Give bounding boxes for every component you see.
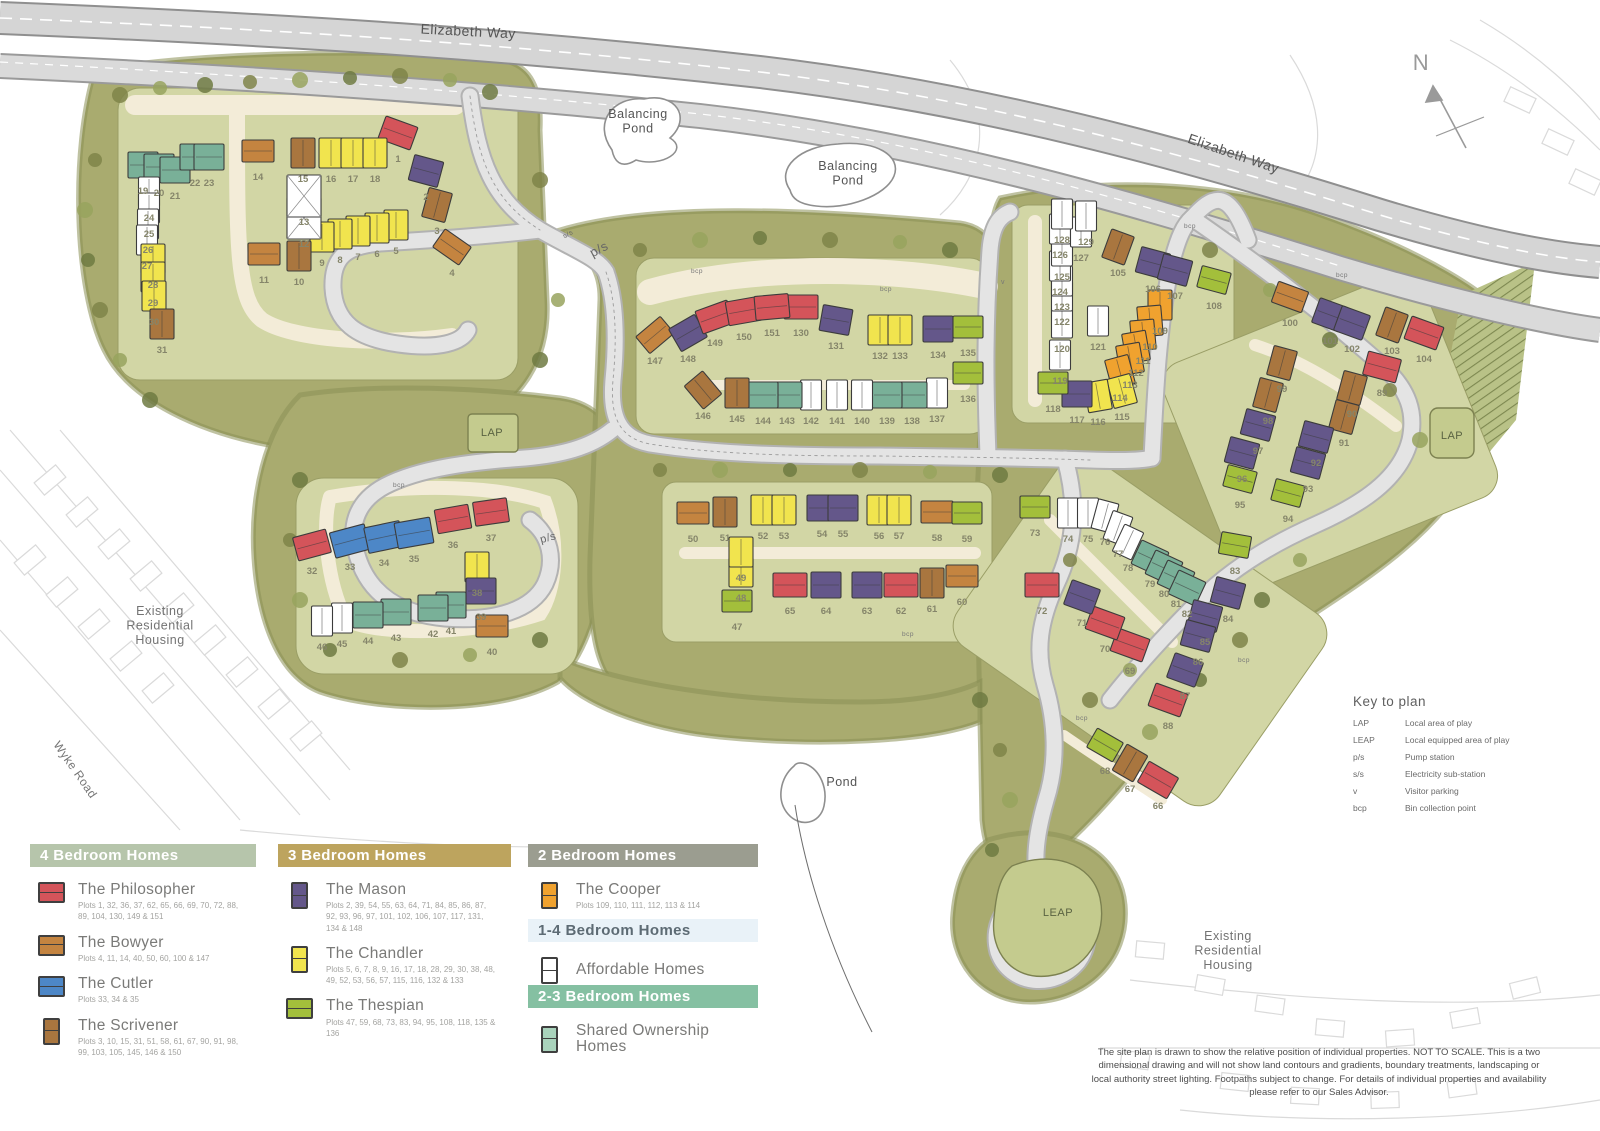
plot-number: 96 [1237, 474, 1248, 485]
plot-house [353, 602, 383, 628]
plot-number: 45 [337, 639, 348, 650]
plot-number: 39 [476, 612, 487, 623]
existing-house-outline [1135, 941, 1164, 959]
tree-icon [653, 463, 667, 477]
plot-house [754, 294, 790, 321]
plot-house [319, 138, 343, 168]
plot-number: 106 [1145, 284, 1161, 295]
plot-number: 76 [1100, 537, 1111, 548]
tree-icon [243, 75, 257, 89]
map-label: bcp [393, 482, 405, 489]
disclaimer-text: The site plan is drawn to show the relat… [1088, 1046, 1550, 1099]
plot-number: 56 [874, 531, 885, 542]
plot-number: 117 [1069, 415, 1084, 426]
plot-house [332, 603, 353, 633]
plot-number: 63 [862, 606, 873, 617]
plot-number: 16 [326, 174, 337, 185]
tree-icon [443, 73, 457, 87]
map-label: ExistingResidentialHousing [126, 604, 193, 647]
plot-number: 1 [395, 154, 401, 165]
plot-number: 80 [1159, 589, 1170, 600]
plot-number: 40 [487, 647, 498, 658]
plot-number: 133 [892, 351, 908, 362]
plot-number: 11 [259, 275, 270, 286]
plot-house [772, 495, 796, 525]
plot-house [248, 243, 280, 265]
map-label: N [1413, 50, 1429, 75]
plot-number: 30 [149, 317, 160, 328]
plot-number: 123 [1054, 302, 1070, 313]
plot-number: 51 [720, 533, 731, 544]
plot-number: 151 [764, 328, 781, 339]
existing-house-outline [130, 561, 162, 591]
plot-number: 12 [299, 239, 310, 250]
plot-number: 57 [894, 531, 905, 542]
plot-house [291, 138, 315, 168]
existing-house-outline [1195, 975, 1225, 996]
plot-number: 93 [1303, 484, 1314, 495]
tree-icon [88, 153, 102, 167]
plot-number: 101 [1322, 336, 1339, 347]
plot-number: 139 [879, 416, 895, 427]
plot-number: 5 [393, 246, 399, 257]
plot-number: 113 [1122, 380, 1137, 391]
plot-number: 46 [317, 642, 328, 653]
plot-number: 38 [472, 588, 483, 599]
tree-icon [992, 467, 1008, 483]
plot-house [1020, 496, 1050, 518]
plot-house [921, 501, 953, 523]
tree-icon [292, 72, 308, 88]
existing-house-outline [98, 529, 130, 559]
existing-house-outline [66, 497, 98, 527]
plot-house [953, 316, 983, 338]
key-desc: Visitor parking [1405, 786, 1459, 796]
map-label: Wyke Road [50, 738, 100, 800]
key-desc: Local area of play [1405, 718, 1472, 728]
plot-number: 90 [1347, 409, 1358, 420]
tree-icon [153, 81, 167, 95]
plot-number: 108 [1206, 301, 1222, 312]
existing-house-outline [1542, 129, 1574, 155]
plot-number: 135 [960, 348, 977, 359]
existing-house-outline [226, 657, 258, 687]
key-abbr: LEAP [1353, 735, 1405, 745]
key-abbr: v [1353, 786, 1405, 796]
tree-icon [292, 472, 308, 488]
plot-house [773, 573, 807, 597]
plot-number: 36 [448, 540, 459, 551]
plot-number: 78 [1123, 563, 1134, 574]
plot-house [811, 572, 841, 598]
tree-icon [712, 462, 728, 478]
key-row: vVisitor parking [1353, 786, 1578, 796]
pond [781, 763, 825, 822]
plot-house [920, 568, 944, 598]
plot-number: 129 [1078, 237, 1094, 248]
plot-number: 105 [1110, 268, 1127, 279]
tree-icon [1254, 592, 1270, 608]
plot-house [946, 565, 978, 587]
map-label: LAP [481, 427, 503, 439]
existing-house-outline [290, 721, 322, 751]
plot-number: 67 [1125, 784, 1136, 795]
tree-icon [482, 84, 498, 100]
plot-number: 32 [307, 566, 318, 577]
map-label: LEAP [1043, 907, 1073, 919]
plot-house [434, 504, 472, 534]
plot-house [729, 537, 753, 567]
key-to-plan: Key to plan LAPLocal area of playLEAPLoc… [1353, 694, 1578, 820]
plot-house [852, 380, 873, 410]
plot-number: 119 [1052, 376, 1067, 387]
tree-icon [893, 235, 907, 249]
plot-number: 81 [1171, 599, 1182, 610]
plot-number: 140 [854, 416, 870, 427]
plot-number: 147 [647, 356, 663, 367]
plot-number: 109 [1152, 326, 1168, 337]
key-row: p/sPump station [1353, 752, 1578, 762]
plot-number: 121 [1090, 342, 1107, 353]
plot-number: 77 [1113, 549, 1124, 560]
plot-number: 74 [1063, 534, 1074, 545]
key-row: bcpBin collection point [1353, 803, 1578, 813]
key-row: LAPLocal area of play [1353, 718, 1578, 728]
plot-number: 10 [294, 277, 305, 288]
tree-icon [985, 843, 999, 857]
plot-number: 49 [736, 573, 747, 584]
tree-icon [292, 592, 308, 608]
existing-house-outline [46, 577, 78, 607]
plot-number: 149 [707, 338, 723, 349]
plot-number: 44 [363, 636, 374, 647]
plot-number: 62 [896, 606, 907, 617]
plot-house [381, 599, 411, 625]
tree-icon [77, 202, 93, 218]
map-label: bcp [691, 268, 703, 275]
plot-number: 6 [374, 249, 379, 260]
key-abbr: s/s [1353, 769, 1405, 779]
tree-icon [1412, 432, 1428, 448]
plot-number: 65 [785, 606, 796, 617]
plot-number: 122 [1054, 317, 1070, 328]
key-desc: Bin collection point [1405, 803, 1476, 813]
map-label: bcp [902, 631, 914, 638]
key-abbr: LAP [1353, 718, 1405, 728]
tree-icon [532, 172, 548, 188]
key-desc: Pump station [1405, 752, 1455, 762]
plot-number: 3 [434, 226, 439, 237]
key-row: LEAPLocal equipped area of play [1353, 735, 1578, 745]
plot-house [953, 362, 983, 384]
plot-number: 29 [148, 298, 159, 309]
plot-number: 53 [779, 531, 790, 542]
plot-house [923, 316, 953, 342]
plot-number: 68 [1100, 766, 1111, 777]
plot-house [748, 382, 778, 408]
key-desc: Electricity sub-station [1405, 769, 1485, 779]
existing-house-outline [34, 465, 66, 495]
tree-icon [463, 648, 477, 662]
plot-house [852, 572, 882, 598]
plot-number: 128 [1054, 235, 1070, 246]
plot-number: 55 [838, 529, 849, 540]
site-plan-page: 1234567891011121314151617181920212223242… [0, 0, 1600, 1131]
plot-number: 59 [962, 534, 973, 545]
plot-house [1052, 199, 1073, 229]
plot-house [884, 573, 918, 597]
tree-icon [1063, 553, 1077, 567]
tree-icon [1082, 692, 1098, 708]
map-label: Pond [826, 775, 857, 789]
plot-number: 98 [1263, 416, 1274, 427]
plot-number: 8 [337, 255, 342, 266]
tree-icon [343, 71, 357, 85]
plot-number: 131 [828, 341, 845, 352]
plot-number: 107 [1167, 291, 1183, 302]
plot-number: 54 [817, 529, 828, 540]
plot-house [363, 138, 387, 168]
tree-icon [392, 68, 408, 84]
plot-number: 24 [144, 213, 155, 224]
plot-house [828, 495, 858, 521]
plot-number: 125 [1054, 272, 1071, 283]
plot-number: 28 [148, 280, 159, 291]
plot-house [341, 138, 365, 168]
tree-icon [822, 232, 838, 248]
plot-number: 58 [932, 533, 943, 544]
plot-number: 92 [1311, 458, 1322, 469]
plot-number: 26 [143, 245, 154, 256]
plot-house [312, 606, 333, 636]
plot-number: 137 [929, 414, 945, 425]
map-label: bcp [1238, 657, 1250, 664]
tree-icon [532, 352, 548, 368]
existing-house-outline [1315, 1019, 1344, 1037]
existing-house-outline [1569, 169, 1600, 195]
plot-number: 114 [1112, 393, 1128, 404]
plot-number: 112 [1128, 368, 1143, 379]
plot-number: 142 [803, 416, 819, 427]
plot-house [801, 380, 822, 410]
plot-number: 84 [1223, 614, 1234, 625]
key-abbr: p/s [1353, 752, 1405, 762]
plot-number: 132 [872, 351, 888, 362]
plot-number: 83 [1230, 566, 1241, 577]
plot-number: 9 [319, 258, 324, 269]
tree-icon [113, 353, 127, 367]
plot-house [819, 305, 853, 336]
plot-number: 79 [1145, 579, 1156, 590]
plot-house [1088, 306, 1109, 336]
plot-house [827, 380, 848, 410]
tree-icon [783, 463, 797, 477]
plot-house [887, 495, 911, 525]
tree-icon [551, 293, 565, 307]
north-compass-icon [1426, 86, 1484, 148]
tree-icon [852, 462, 868, 478]
plot-number: 136 [960, 394, 976, 405]
tree-icon [81, 253, 95, 267]
plot-house [725, 378, 749, 408]
plot-number: 144 [755, 416, 772, 427]
plot-number: 31 [157, 345, 168, 356]
plot-number: 2 [423, 192, 428, 203]
plot-number: 37 [486, 533, 497, 544]
plot-number: 94 [1283, 514, 1294, 525]
plot-number: 22 [190, 178, 201, 189]
tree-icon [1293, 553, 1307, 567]
plot-number: 47 [732, 622, 743, 633]
plot-number: 118 [1045, 404, 1060, 415]
plot-number: 15 [298, 174, 309, 185]
plot-number: 60 [957, 597, 968, 608]
plot-number: 75 [1083, 534, 1094, 545]
plot-house [1218, 532, 1251, 559]
tree-icon [923, 465, 937, 479]
plot-number: 25 [144, 229, 155, 240]
tree-icon [392, 652, 408, 668]
plot-number: 35 [409, 554, 420, 565]
plot-number: 66 [1153, 801, 1164, 812]
plot-house [677, 502, 709, 524]
key-row: s/sElectricity sub-station [1353, 769, 1578, 779]
plot-number: 27 [142, 261, 153, 272]
plot-number: 97 [1253, 446, 1264, 457]
plot-number: 50 [688, 534, 699, 545]
tree-icon [112, 87, 128, 103]
tree-icon [993, 743, 1007, 757]
plot-number: 138 [904, 416, 920, 427]
existing-house-outline [14, 545, 46, 575]
map-label: bcp [1336, 272, 1348, 279]
plot-number: 87 [1180, 691, 1191, 702]
plot-number: 48 [736, 593, 747, 604]
plot-number: 134 [930, 350, 947, 361]
plot-number: 89 [1377, 388, 1388, 399]
plot-number: 120 [1054, 344, 1070, 355]
tree-icon [692, 232, 708, 248]
map-label: bcp [880, 286, 892, 293]
plot-number: 69 [1125, 666, 1136, 677]
plot-number: 17 [348, 174, 359, 185]
plot-number: 70 [1100, 644, 1111, 655]
plot-house [194, 144, 224, 170]
plot-number: 150 [736, 332, 752, 343]
plot-number: 146 [695, 411, 711, 422]
plot-number: 18 [370, 174, 381, 185]
plot-house [927, 378, 948, 408]
plot-number: 14 [253, 172, 264, 183]
existing-house-outline [78, 609, 110, 639]
plot-number: 4 [449, 268, 455, 279]
key-abbr: bcp [1353, 803, 1405, 813]
map-label: ExistingResidentialHousing [1194, 929, 1261, 972]
plot-number: 71 [1077, 618, 1088, 629]
plot-number: 19 [138, 186, 149, 197]
plot-number: 86 [1193, 657, 1204, 668]
plot-number: 104 [1416, 354, 1433, 365]
plot-house [418, 595, 448, 621]
plot-number: 21 [170, 191, 181, 202]
plot-number: 99 [1277, 384, 1288, 395]
plot-house [1076, 201, 1097, 231]
plot-number: 34 [379, 558, 390, 569]
map-label: v [1001, 279, 1005, 286]
plot-number: 7 [355, 252, 360, 263]
tree-icon [197, 77, 213, 93]
plot-house [394, 517, 434, 549]
plot-number: 143 [779, 416, 795, 427]
map-label: bcp [1076, 715, 1088, 722]
plot-number: 95 [1235, 500, 1246, 511]
plot-house [872, 382, 902, 408]
existing-house-outline [1255, 995, 1285, 1015]
plot-number: 110 [1142, 342, 1157, 353]
plot-number: 115 [1114, 412, 1130, 423]
plot-house [751, 495, 775, 525]
plot-number: 13 [299, 217, 310, 228]
map-label: bcp [1184, 223, 1196, 230]
plot-number: 20 [154, 188, 165, 199]
plot-number: 145 [729, 414, 746, 425]
site-map: 1234567891011121314151617181920212223242… [0, 0, 1600, 1131]
plot-number: 85 [1200, 637, 1211, 648]
map-label: LAP [1441, 430, 1463, 442]
plot-number: 73 [1030, 528, 1041, 539]
plot-number: 52 [758, 531, 769, 542]
plot-number: 124 [1052, 287, 1069, 298]
existing-house-outline [194, 625, 226, 655]
plot-house [1058, 498, 1079, 528]
plot-number: 72 [1037, 606, 1048, 617]
plot-number: 41 [446, 626, 457, 637]
plot-number: 130 [793, 328, 809, 339]
tree-icon [532, 632, 548, 648]
plot-number: 82 [1182, 609, 1193, 620]
plot-number: 141 [829, 416, 846, 427]
key-desc: Local equipped area of play [1405, 735, 1509, 745]
existing-house-outline [1385, 1029, 1414, 1047]
plot-number: 43 [391, 633, 402, 644]
plot-number: 23 [204, 178, 215, 189]
plot-number: 126 [1052, 250, 1068, 261]
tree-icon [1202, 242, 1218, 258]
plot-number: 103 [1384, 346, 1400, 357]
tree-icon [633, 243, 647, 257]
existing-house-outline [142, 673, 174, 703]
plot-house [888, 315, 912, 345]
plot-number: 64 [821, 606, 832, 617]
plot-number: 148 [680, 354, 696, 365]
plot-number: 33 [345, 562, 356, 573]
plot-number: 42 [428, 629, 439, 640]
plot-number: 102 [1344, 344, 1360, 355]
plot-house [952, 502, 982, 524]
tree-icon [1142, 724, 1158, 740]
tree-icon [92, 302, 108, 318]
plot-house [242, 140, 274, 162]
plot-house [713, 497, 737, 527]
plot-house [472, 498, 509, 526]
tree-icon [1232, 632, 1248, 648]
plot-number: 127 [1073, 253, 1089, 264]
existing-house-outline [1450, 1008, 1480, 1029]
tree-icon [142, 392, 158, 408]
plot-number: 100 [1282, 318, 1298, 329]
tree-icon [942, 242, 958, 258]
plot-house [1025, 573, 1059, 597]
